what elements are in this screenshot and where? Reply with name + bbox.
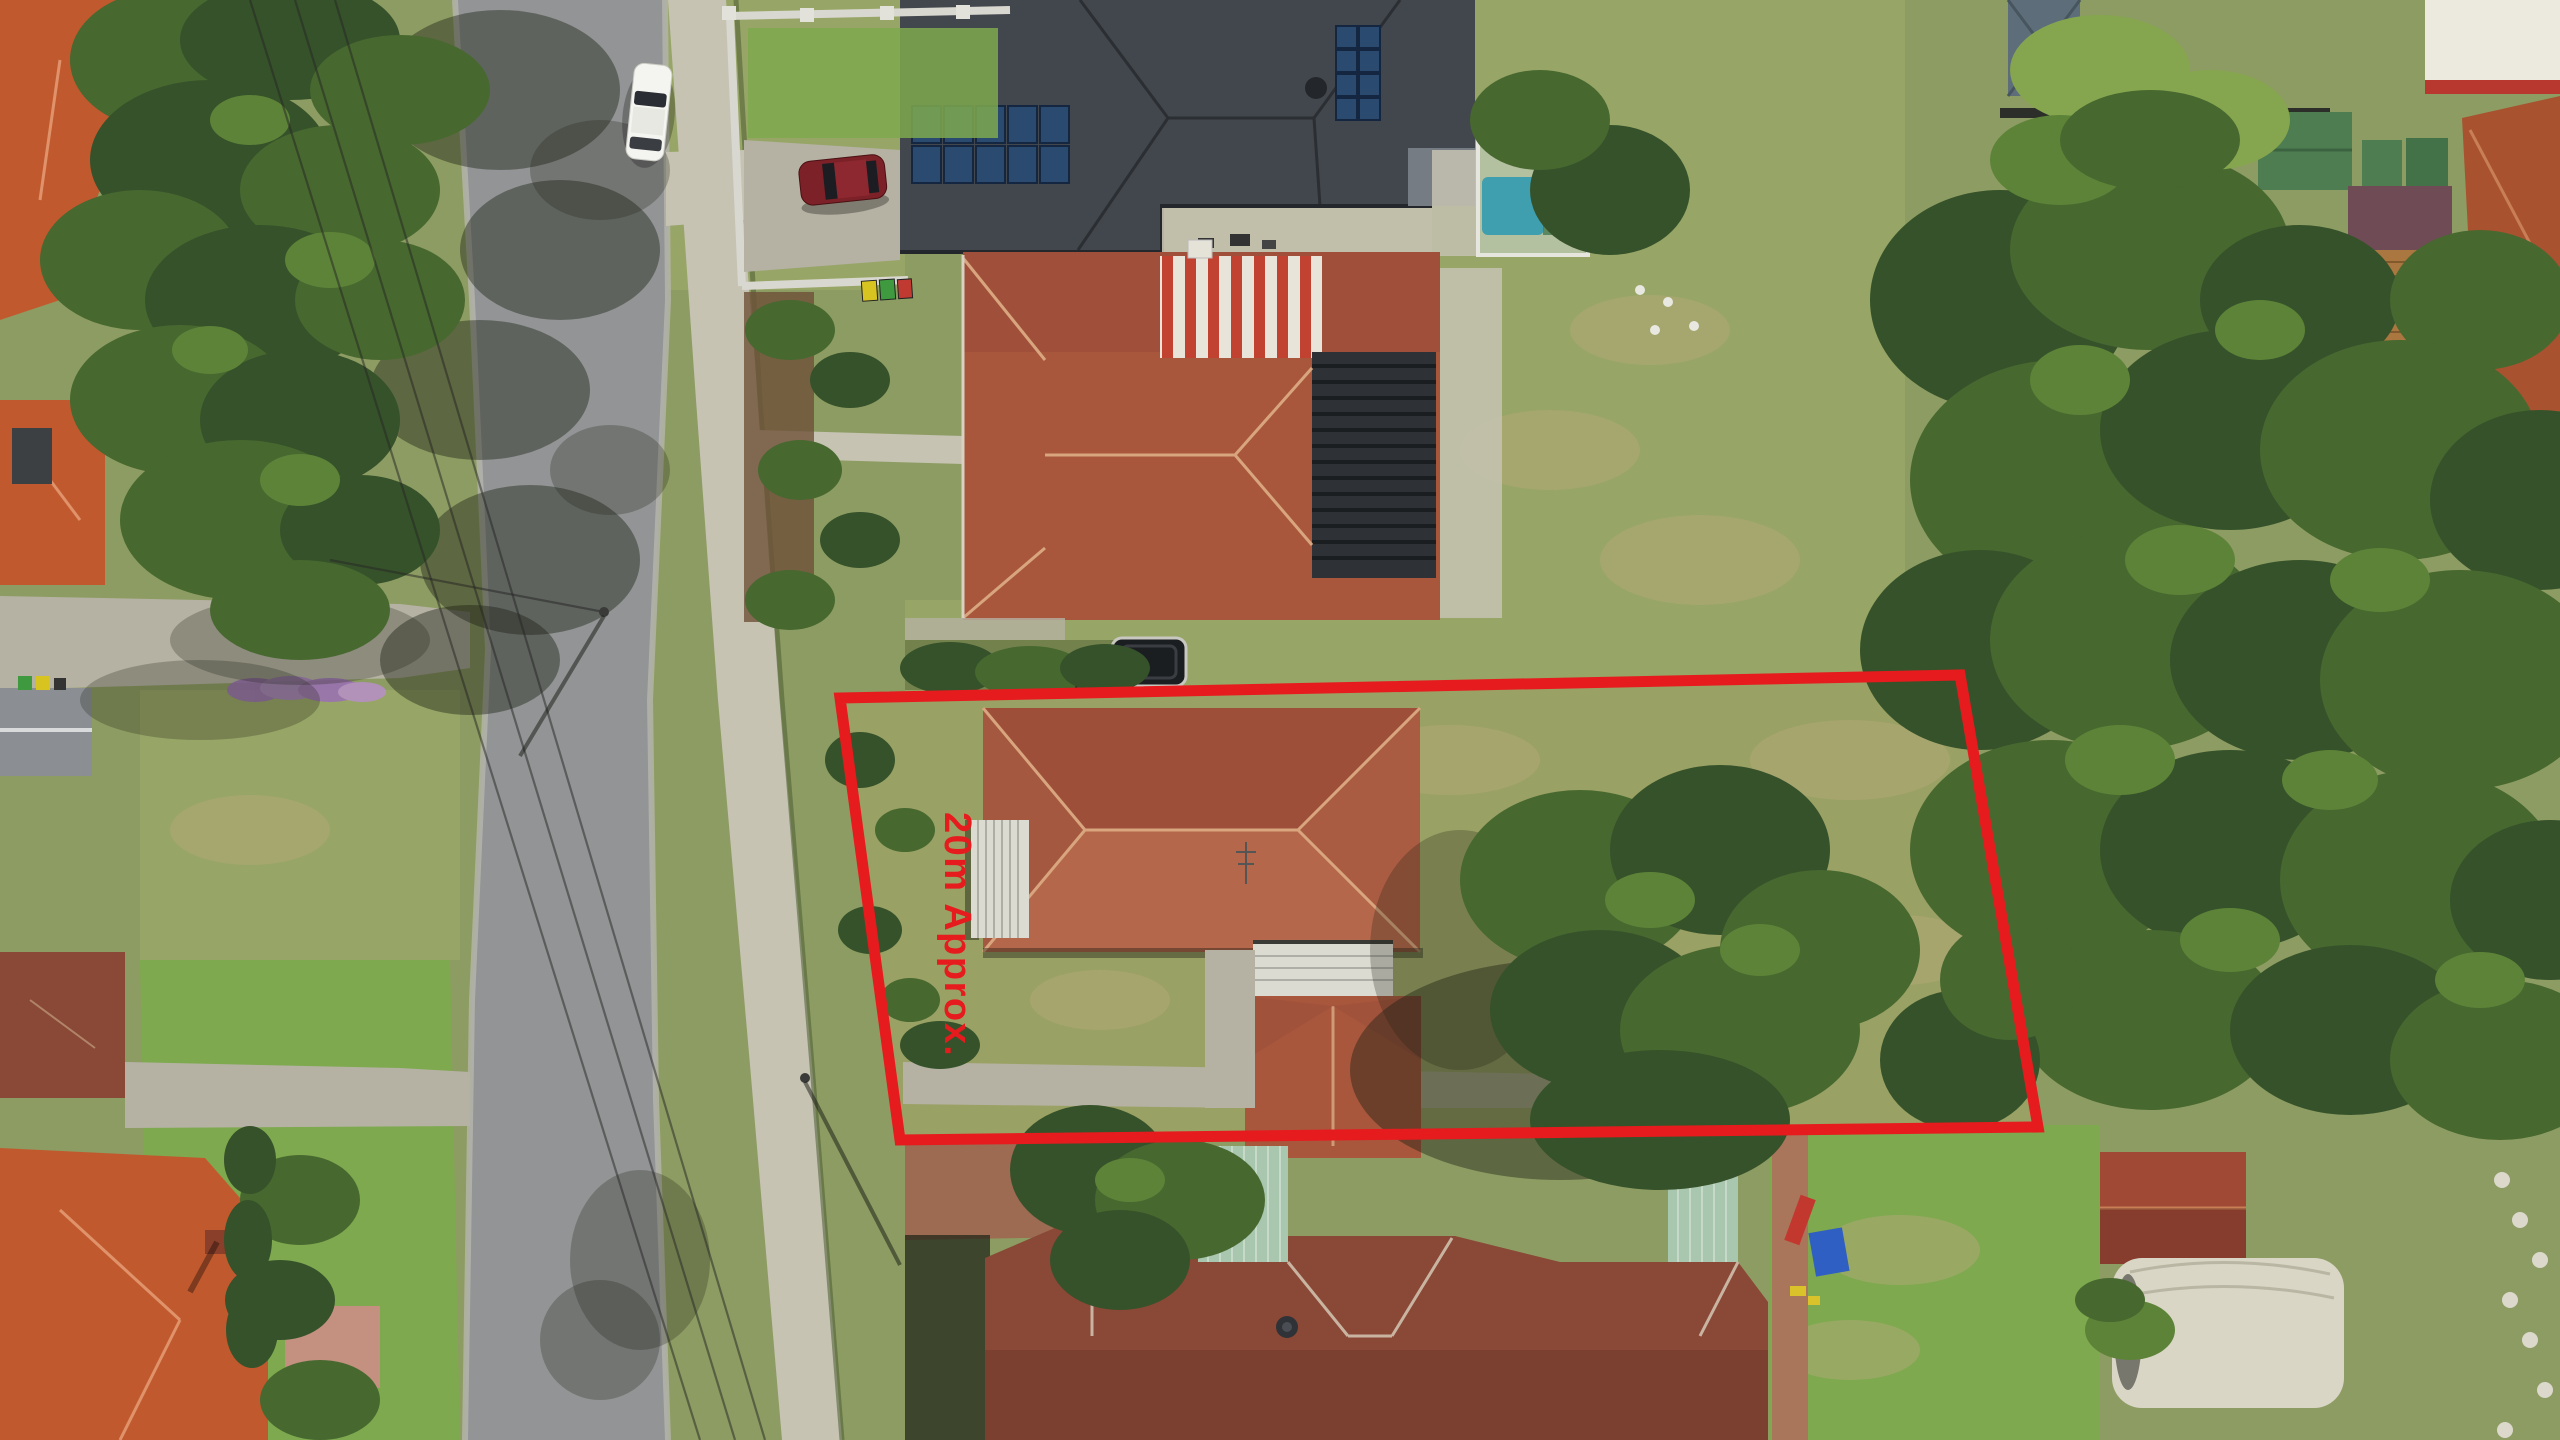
subject-house-roof — [983, 708, 1420, 952]
white-roof-corner — [2425, 0, 2560, 86]
garden-shed-red — [2100, 1152, 2246, 1264]
white-side-awning — [971, 820, 1029, 938]
aerial-scene: 20m Approx. — [0, 0, 2560, 1440]
satellite-dish — [1305, 77, 1327, 99]
lot-frontage-label: 20m Approx. — [936, 812, 978, 1057]
subject-driveway — [1205, 950, 1255, 1108]
wheelie-bins — [861, 278, 912, 301]
power-pole-south — [800, 1073, 810, 1083]
aerial-photo: 20m Approx. — [0, 0, 2560, 1440]
striped-patio-roof — [1160, 256, 1322, 358]
slab-path — [903, 1062, 1250, 1108]
dark-shed — [12, 428, 52, 484]
slatted-pergola — [1312, 352, 1436, 578]
power-pole — [599, 607, 609, 617]
